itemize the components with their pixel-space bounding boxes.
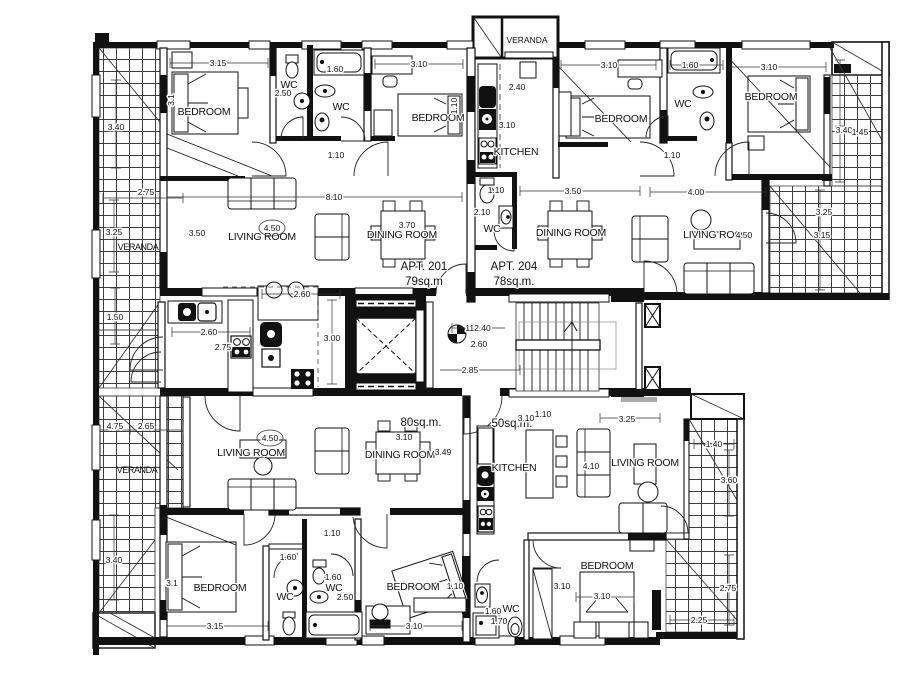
svg-text:4.50: 4.50	[264, 223, 281, 233]
svg-text:3.25: 3.25	[106, 227, 123, 237]
svg-text:3.15: 3.15	[814, 230, 831, 240]
svg-text:2.60: 2.60	[471, 339, 488, 349]
svg-text:DINING ROOM: DINING ROOM	[365, 449, 435, 461]
svg-text:1.60: 1.60	[280, 552, 297, 562]
svg-text:4.50: 4.50	[262, 433, 279, 443]
svg-text:3.10: 3.10	[406, 621, 423, 631]
svg-text:3.25: 3.25	[816, 207, 833, 217]
svg-text:2.75: 2.75	[138, 187, 155, 197]
svg-text:1.60: 1.60	[682, 60, 699, 70]
svg-text:3.10: 3.10	[601, 60, 618, 70]
svg-text:3.10: 3.10	[499, 120, 516, 130]
svg-text:3.1: 3.1	[166, 578, 178, 588]
svg-text:DINING ROOM: DINING ROOM	[536, 227, 606, 239]
svg-text:3.10: 3.10	[594, 591, 611, 601]
svg-text:BEDROOM: BEDROOM	[178, 106, 231, 118]
svg-text:1.50: 1.50	[107, 312, 124, 322]
svg-text:1.10: 1.10	[328, 150, 345, 160]
svg-text:3.60: 3.60	[721, 475, 738, 485]
svg-text:1.60: 1.60	[325, 572, 342, 582]
svg-text:1.60: 1.60	[327, 64, 344, 74]
svg-text:WC: WC	[483, 223, 501, 235]
svg-text:3.00: 3.00	[324, 333, 341, 343]
svg-text:3.50: 3.50	[565, 186, 582, 196]
svg-text:3.50: 3.50	[189, 228, 206, 238]
svg-text:VERANDA: VERANDA	[506, 35, 547, 45]
svg-text:WC: WC	[674, 98, 692, 110]
svg-text:KITCHEN: KITCHEN	[494, 146, 539, 158]
svg-text:BEDROOM: BEDROOM	[194, 582, 247, 594]
svg-text:3.10: 3.10	[396, 432, 413, 442]
svg-text:2.75: 2.75	[215, 342, 232, 352]
svg-text:1.45: 1.45	[852, 127, 869, 137]
svg-text:4.75: 4.75	[107, 421, 124, 431]
svg-text:3.25: 3.25	[619, 414, 636, 424]
svg-text:1.40: 1.40	[706, 439, 723, 449]
svg-text:1.10: 1.10	[535, 409, 552, 419]
svg-text:3.10: 3.10	[554, 581, 571, 591]
svg-text:2.65: 2.65	[138, 421, 155, 431]
svg-text:2.10: 2.10	[474, 207, 491, 217]
svg-text:1.10: 1.10	[449, 97, 459, 114]
svg-text:DINING ROOM: DINING ROOM	[367, 229, 437, 241]
svg-text:3.10: 3.10	[761, 62, 778, 72]
svg-text:WC: WC	[502, 603, 520, 615]
svg-text:3.15: 3.15	[207, 621, 224, 631]
svg-text:79sq.m: 79sq.m	[405, 276, 443, 288]
svg-text:112.40: 112.40	[465, 323, 491, 333]
svg-text:WC: WC	[276, 591, 294, 603]
svg-text:4.10: 4.10	[583, 461, 600, 471]
svg-text:KITCHEN: KITCHEN	[492, 462, 537, 474]
svg-text:1.10: 1.10	[488, 185, 505, 195]
svg-text:80sq.m.: 80sq.m.	[401, 417, 442, 429]
svg-text:8.10: 8.10	[326, 192, 343, 202]
svg-text:BEDROOM: BEDROOM	[387, 581, 440, 593]
svg-text:4.00: 4.00	[688, 187, 705, 197]
svg-text:78sq.m.: 78sq.m.	[494, 276, 535, 288]
svg-text:LIVING ROOM: LIVING ROOM	[611, 457, 679, 469]
svg-text:WC: WC	[332, 101, 350, 113]
svg-text:3.1: 3.1	[166, 94, 176, 106]
svg-text:BEDROOM: BEDROOM	[745, 91, 798, 103]
svg-text:BEDROOM: BEDROOM	[595, 113, 648, 125]
svg-text:3.40: 3.40	[108, 122, 125, 132]
svg-text:1.70: 1.70	[491, 616, 508, 626]
svg-text:APT. 204: APT. 204	[491, 261, 538, 273]
svg-text:2.75: 2.75	[720, 583, 737, 593]
svg-text:2.60: 2.60	[294, 289, 311, 299]
svg-text:3.40: 3.40	[106, 555, 123, 565]
svg-text:4.50: 4.50	[736, 230, 753, 240]
svg-text:2.40: 2.40	[509, 82, 526, 92]
svg-text:1.10: 1.10	[324, 528, 341, 538]
svg-text:2.25: 2.25	[691, 615, 708, 625]
svg-text:2.60: 2.60	[201, 327, 218, 337]
svg-text:2.85: 2.85	[462, 365, 479, 375]
svg-text:3.40: 3.40	[836, 125, 853, 135]
svg-text:VERANDA: VERANDA	[118, 242, 159, 252]
svg-text:1.60: 1.60	[485, 606, 502, 616]
svg-text:BEDROOM: BEDROOM	[581, 560, 634, 572]
svg-text:APT. 201: APT. 201	[401, 261, 448, 273]
svg-text:3.10: 3.10	[411, 59, 428, 69]
svg-text:3.15: 3.15	[210, 58, 227, 68]
svg-text:3.49: 3.49	[435, 447, 452, 457]
svg-text:VERANDA: VERANDA	[117, 465, 158, 475]
svg-text:LIVING ROOM: LIVING ROOM	[217, 447, 285, 459]
svg-text:2.50: 2.50	[275, 88, 292, 98]
svg-text:1.10: 1.10	[664, 150, 681, 160]
svg-text:3.70: 3.70	[399, 220, 416, 230]
svg-text:2.50: 2.50	[337, 592, 354, 602]
svg-text:3.10: 3.10	[518, 413, 535, 423]
svg-text:1.10: 1.10	[447, 581, 464, 591]
